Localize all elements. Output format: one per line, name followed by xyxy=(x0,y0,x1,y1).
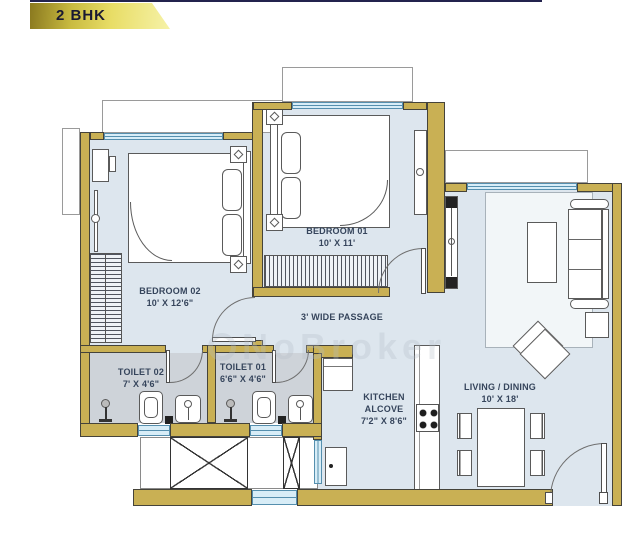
bedroom01-pillow-2 xyxy=(281,177,301,219)
nightstand-lamp-icon xyxy=(270,112,280,122)
wall-bottom-a xyxy=(133,489,252,506)
exterior-ledge-living xyxy=(445,150,588,183)
header-rule xyxy=(30,0,542,2)
toilet01-wc-seat xyxy=(257,397,271,418)
bedroom02-bed-headboard xyxy=(243,151,251,264)
nightstand-lamp-icon xyxy=(270,218,280,228)
entrance-jamb-right xyxy=(599,492,608,504)
bedroom02-door-leaf xyxy=(212,337,256,342)
toilet01-name: TOILET 01 xyxy=(220,361,266,373)
wall-bedroom01-top-left xyxy=(253,102,292,110)
dining-chair-2 xyxy=(457,450,472,476)
floor-plan-page: 2 BHK xyxy=(0,0,642,540)
living-coffee-table xyxy=(527,222,557,283)
bedroom02-size: 10' X 12'6" xyxy=(139,297,201,309)
exterior-ledge-bedroom01 xyxy=(282,67,413,102)
toilet02-basin-tap xyxy=(188,408,189,420)
bedroom02-label: BEDROOM 02 10' X 12'6" xyxy=(139,285,201,309)
kitchen-size: 7'2" X 8'6" xyxy=(361,415,407,427)
bedroom01-window xyxy=(292,102,403,109)
bedroom02-wardrobe xyxy=(90,253,122,343)
bedroom01-pillow-1 xyxy=(281,132,301,174)
toilet02-window xyxy=(138,425,170,436)
bedroom02-window xyxy=(104,133,223,140)
sofa-backrest xyxy=(602,209,609,299)
nightstand-lamp-icon xyxy=(234,260,244,270)
kitchen-door-knob-icon xyxy=(329,464,333,468)
nightstand-lamp-icon xyxy=(234,150,244,160)
plan-type-label: 2 BHK xyxy=(30,3,170,29)
wall-bedroom01-living xyxy=(427,102,445,293)
bedroom02-wardrobe-divider xyxy=(105,253,106,343)
kitchen-fridge xyxy=(323,358,353,391)
bedroom02-dresser xyxy=(92,149,109,182)
bedroom01-label: BEDROOM 01 10' X 11' xyxy=(306,225,368,249)
wall-toilets-bottom-c xyxy=(282,423,322,437)
kitchen-label: KITCHEN ALCOVE 7'2" X 8'6" xyxy=(361,391,407,427)
entrance-door-leaf xyxy=(601,443,607,499)
toilet01-size: 6'6" X 4'6" xyxy=(220,373,266,385)
toilet01-label: TOILET 01 6'6" X 4'6" xyxy=(220,361,266,385)
bedroom02-pillow-1 xyxy=(222,169,242,211)
living-speaker-bottom-icon xyxy=(446,277,457,288)
toilet02-door-leaf xyxy=(166,350,170,383)
dining-chair-1 xyxy=(457,413,472,439)
living-side-table xyxy=(585,312,609,338)
bedroom02-nightstand-2 xyxy=(230,256,247,273)
living-dining-name: LIVING / DINING xyxy=(464,381,536,393)
bedroom01-wardrobe xyxy=(264,255,388,287)
bedroom01-name: BEDROOM 01 xyxy=(306,225,368,237)
toilet02-shower-base xyxy=(99,419,112,422)
bedroom02-name: BEDROOM 02 xyxy=(139,285,201,297)
wall-right xyxy=(612,183,622,506)
living-speaker-top-icon xyxy=(446,197,457,208)
toilet01-shower-base xyxy=(224,419,237,422)
duct-box-small xyxy=(283,437,300,489)
dining-table xyxy=(477,408,525,487)
sofa-seat-line-2 xyxy=(569,269,601,270)
bedroom01-dresser-pivot xyxy=(416,168,424,176)
bedroom01-size: 10' X 11' xyxy=(306,237,368,249)
wall-bottom-b xyxy=(297,489,553,506)
kitchen-fridge-line xyxy=(324,366,352,367)
toilet02-basin-drain xyxy=(184,400,192,408)
bedroom02-pillow-2 xyxy=(222,214,242,256)
bedroom02-nightstand-1 xyxy=(230,146,247,163)
bedroom01-bed-headboard xyxy=(270,115,278,228)
entrance-jamb-left xyxy=(545,492,553,504)
plan-type-banner: 2 BHK xyxy=(30,3,170,29)
sofa-armrest-top xyxy=(570,199,609,209)
bedroom01-nightstand-1 xyxy=(266,108,283,125)
living-dining-size: 10' X 18' xyxy=(464,393,536,405)
wall-bedroom-divider xyxy=(252,102,263,297)
wall-bedroom01-top-right xyxy=(403,102,427,110)
dining-chair-3 xyxy=(530,413,545,439)
kitchen-name-line2: ALCOVE xyxy=(361,403,407,415)
living-window xyxy=(467,183,577,190)
living-tv-line xyxy=(451,208,452,276)
kitchen-hob-burners-icon xyxy=(416,404,439,432)
kitchen-name-line1: KITCHEN xyxy=(361,391,407,403)
exterior-ledge-left xyxy=(62,128,80,215)
living-dining-label: LIVING / DINING 10' X 18' xyxy=(464,381,536,405)
wall-toilets-top-a xyxy=(80,345,166,353)
sofa-seat-line-1 xyxy=(569,239,601,240)
toilet01-basin-drain xyxy=(296,400,304,408)
wall-toilets-bottom-b xyxy=(170,423,250,437)
utility-window xyxy=(252,490,297,505)
wall-living-top-left xyxy=(445,183,467,192)
kitchen-window xyxy=(314,440,322,484)
duct-box-large xyxy=(170,437,248,489)
toilet01-basin-tap xyxy=(300,408,301,420)
toilet02-wc-seat xyxy=(144,397,158,418)
wall-toilet-divider xyxy=(207,345,216,423)
wall-toilets-bottom-a xyxy=(80,423,138,437)
toilet02-size: 7' X 4'6" xyxy=(118,378,164,390)
toilet02-label: TOILET 02 7' X 4'6" xyxy=(118,366,164,390)
passage-label: 3' WIDE PASSAGE xyxy=(301,311,383,323)
wall-bedroom01-bottom xyxy=(253,287,390,297)
dining-chair-4 xyxy=(530,450,545,476)
bedroom01-nightstand-2 xyxy=(266,214,283,231)
wall-left xyxy=(80,132,90,437)
toilet02-name: TOILET 02 xyxy=(118,366,164,378)
sofa-armrest-bottom xyxy=(570,299,609,309)
wall-bedroom02-top-left xyxy=(90,132,104,140)
bedroom01-door-leaf xyxy=(421,248,426,294)
toilet01-window xyxy=(250,425,282,436)
bedroom02-mirror-pivot xyxy=(91,214,100,223)
sofa-seats xyxy=(568,209,602,299)
passage-name: 3' WIDE PASSAGE xyxy=(301,311,383,323)
bedroom02-dresser-knob xyxy=(109,156,116,172)
toilet01-door-leaf xyxy=(272,350,276,383)
